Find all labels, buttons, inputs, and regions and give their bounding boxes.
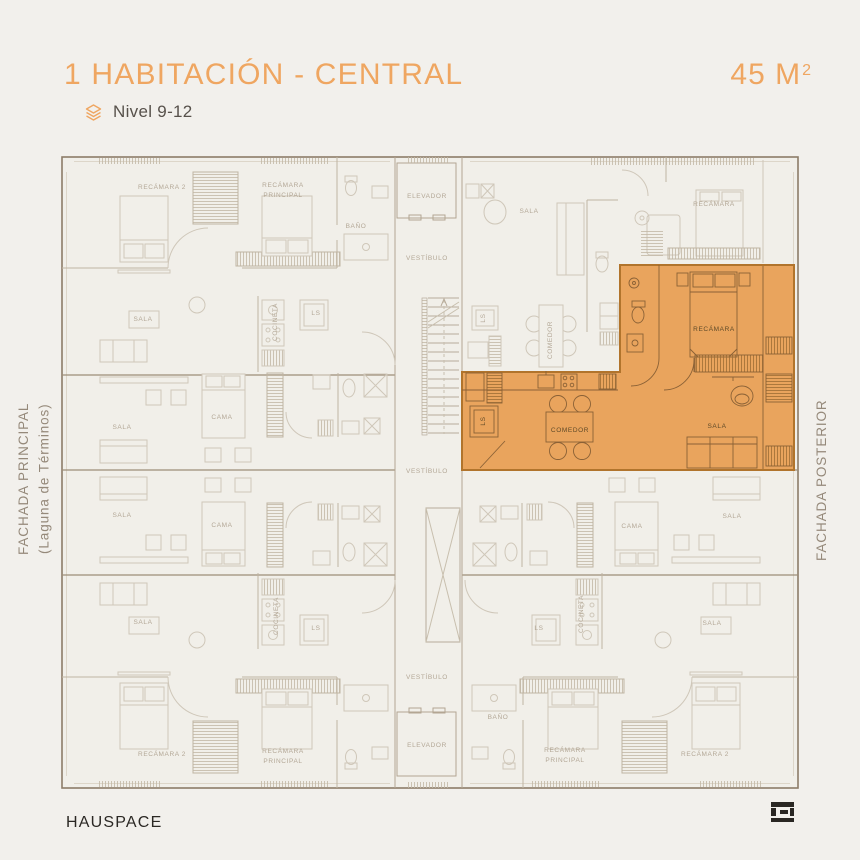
layers-icon <box>84 103 103 122</box>
floor-plan <box>0 0 860 860</box>
facade-principal-label: FACHADA PRINCIPAL (Laguna de Términos) <box>14 380 55 578</box>
area-exponent: 2 <box>802 62 812 79</box>
brand-name: HAUSPACE <box>66 814 162 832</box>
level-indicator: Nivel 9-12 <box>84 102 193 122</box>
page-title: 1 HABITACIÓN - CENTRAL <box>64 58 463 92</box>
hauspace-logo-icon <box>771 800 795 824</box>
level-label: Nivel 9-12 <box>113 102 193 122</box>
unit-area: 45 M2 <box>730 58 812 92</box>
facade-posterior-label: FACHADA POSTERIOR <box>812 392 832 568</box>
